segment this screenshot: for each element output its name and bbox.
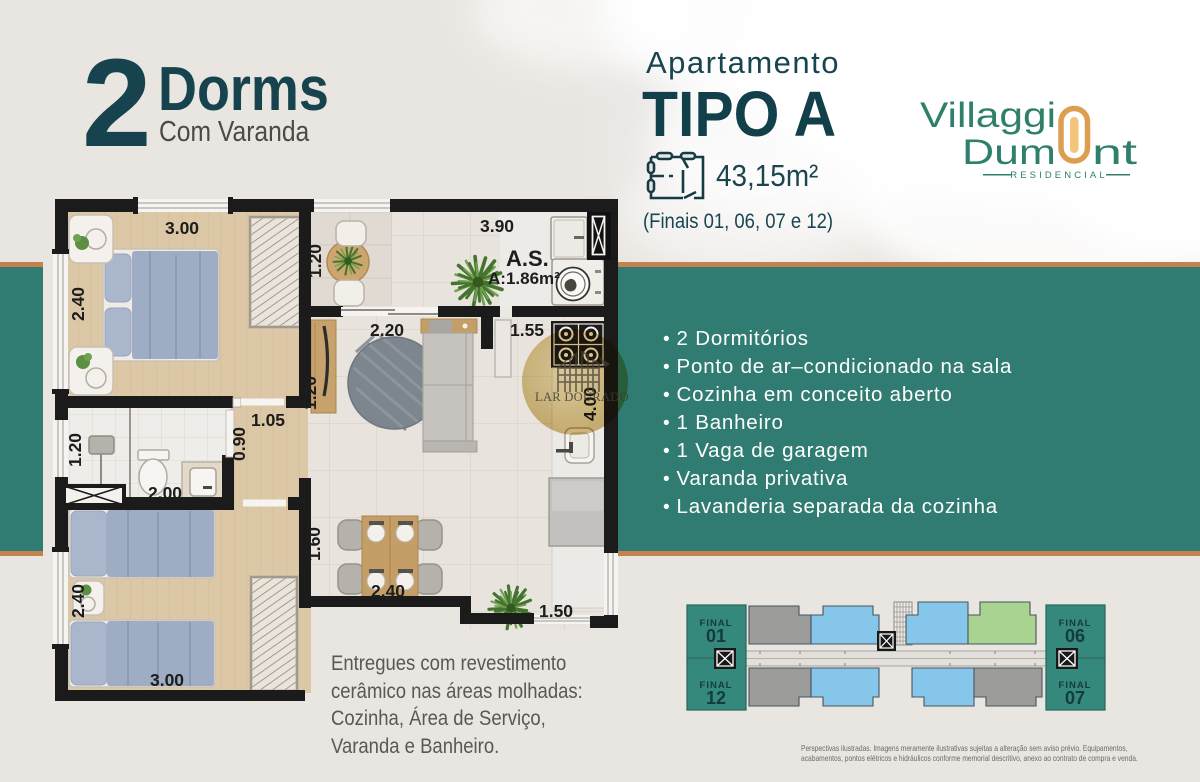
svg-text:06: 06 bbox=[1065, 626, 1085, 646]
svg-text:3.00: 3.00 bbox=[150, 670, 184, 690]
svg-text:A.S.: A.S. bbox=[506, 246, 549, 271]
svg-text:Villaggi: Villaggi bbox=[920, 96, 1056, 135]
svg-text:12: 12 bbox=[706, 688, 726, 708]
svg-text:1.50: 1.50 bbox=[539, 601, 573, 621]
svg-text:A:1.86m²: A:1.86m² bbox=[488, 269, 560, 288]
svg-text:2.40: 2.40 bbox=[371, 581, 405, 601]
svg-text:Dum: Dum bbox=[962, 133, 1056, 172]
svg-text:1.05: 1.05 bbox=[251, 410, 285, 430]
svg-text:1.20: 1.20 bbox=[300, 376, 320, 410]
svg-text:1.60: 1.60 bbox=[304, 527, 324, 561]
svg-text:01: 01 bbox=[706, 626, 726, 646]
svg-text:07: 07 bbox=[1065, 688, 1085, 708]
svg-text:1.20: 1.20 bbox=[305, 244, 325, 278]
svg-text:2.00: 2.00 bbox=[148, 483, 182, 503]
svg-text:2.40: 2.40 bbox=[68, 287, 88, 321]
svg-text:3.00: 3.00 bbox=[165, 218, 199, 238]
svg-text:LAR DOURADO: LAR DOURADO bbox=[535, 390, 629, 404]
svg-text:0.90: 0.90 bbox=[229, 427, 249, 461]
svg-text:1.55: 1.55 bbox=[510, 320, 544, 340]
svg-text:nt: nt bbox=[1092, 133, 1137, 172]
svg-text:2.40: 2.40 bbox=[68, 584, 88, 618]
svg-text:RESIDENCIAL: RESIDENCIAL bbox=[1010, 170, 1107, 181]
svg-text:3.90: 3.90 bbox=[480, 216, 514, 236]
svg-text:1.20: 1.20 bbox=[65, 433, 85, 467]
svg-text:2.20: 2.20 bbox=[370, 320, 404, 340]
